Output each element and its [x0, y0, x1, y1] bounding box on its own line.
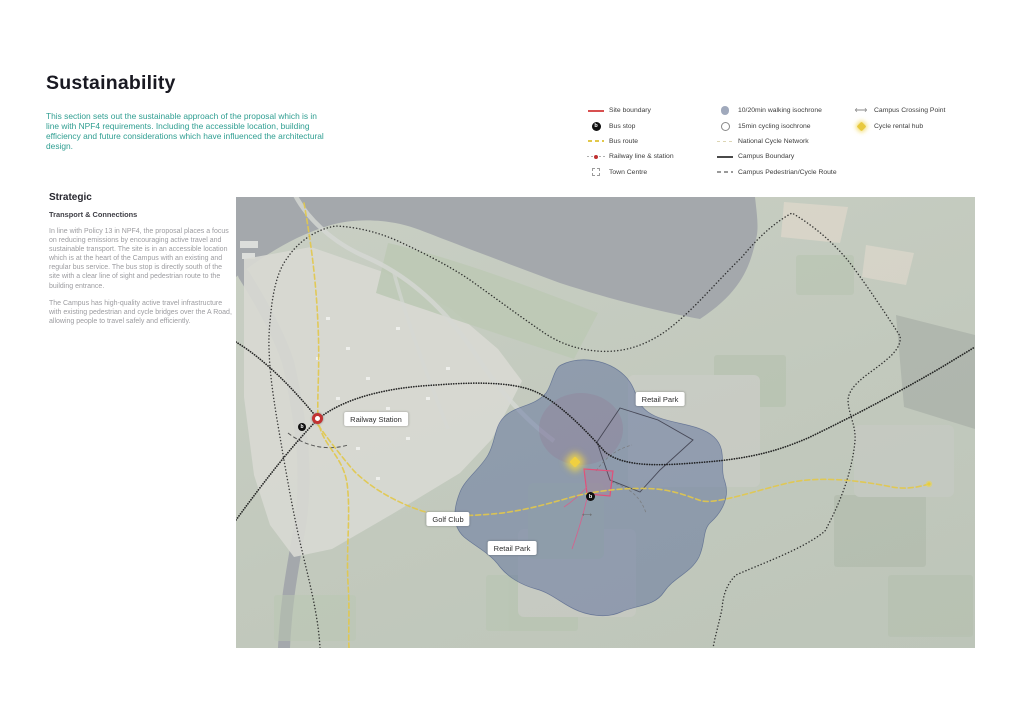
- body-paragraph: In line with Policy 13 in NPF4, the prop…: [49, 227, 232, 291]
- railway-station-icon: [587, 152, 605, 162]
- legend-item: Town Centre: [583, 165, 674, 180]
- legend-label: Cycle rental hub: [874, 123, 923, 130]
- town-centre-icon: [592, 168, 600, 176]
- legend-item: Campus Boundary: [712, 149, 837, 164]
- page-title: Sustainability: [46, 72, 176, 95]
- legend-item: Cycle rental hub: [848, 118, 945, 133]
- bus-stop-map-icon: b: [298, 423, 306, 431]
- body-paragraph: The Campus has high-quality active trave…: [49, 299, 232, 326]
- map-label-golf-club: Golf Club: [426, 512, 469, 526]
- legend-item: Railway line & station: [583, 149, 674, 164]
- legend-item: 15min cycling isochrone: [712, 118, 837, 133]
- legend-item: Site boundary: [583, 103, 674, 118]
- legend-label: 10/20min walking isochrone: [738, 107, 822, 114]
- bus-route-icon: [583, 140, 609, 142]
- cycling-isochrone-icon: [721, 122, 730, 131]
- walking-isochrone-icon: [721, 106, 730, 115]
- legend-label: Bus stop: [609, 123, 635, 130]
- strategic-section: Strategic Transport & Connections In lin…: [49, 192, 232, 334]
- map-label-railway-station: Railway Station: [344, 412, 408, 426]
- legend-label: Railway line & station: [609, 153, 674, 160]
- section-subheading: Transport & Connections: [49, 210, 232, 219]
- bus-stop-map-icon: b: [586, 492, 595, 501]
- legend-column-1: Site boundary b Bus stop Bus route Railw…: [583, 103, 674, 180]
- legend-item: National Cycle Network: [712, 134, 837, 149]
- legend-item: Bus route: [583, 134, 674, 149]
- legend-column-2: 10/20min walking isochrone 15min cycling…: [712, 103, 837, 180]
- site-boundary-icon: [583, 110, 609, 112]
- legend-label: Campus Crossing Point: [874, 107, 945, 114]
- legend-label: Town Centre: [609, 169, 647, 176]
- bus-stop-icon: b: [592, 122, 601, 131]
- national-cycle-network-icon: [712, 141, 738, 143]
- campus-boundary-icon: [712, 156, 738, 157]
- legend-item: ⟷ Campus Crossing Point: [848, 103, 945, 118]
- cycle-hub-icon: [856, 121, 866, 131]
- legend-label: Campus Pedestrian/Cycle Route: [738, 169, 837, 176]
- cycle-route-marker-dot: [927, 482, 930, 485]
- legend-item: b Bus stop: [583, 118, 674, 133]
- railway-station-map-icon: [312, 413, 323, 424]
- pedestrian-cycle-route-icon: [712, 171, 738, 173]
- document-page: Sustainability This section sets out the…: [0, 0, 1024, 724]
- legend-label: Bus route: [609, 138, 638, 145]
- intro-text: This section sets out the sustainable ap…: [46, 111, 324, 151]
- isochrone-overlap-tint: [539, 393, 623, 465]
- legend-label: 15min cycling isochrone: [738, 123, 811, 130]
- transport-map: ⟷ b b Railway Station Retail Park Golf C…: [236, 197, 975, 648]
- section-heading: Strategic: [49, 192, 232, 203]
- crossing-point-icon: ⟷: [855, 106, 868, 115]
- legend-item: Campus Pedestrian/Cycle Route: [712, 165, 837, 180]
- campus-crossing-point-icon: ⟷: [582, 512, 592, 519]
- map-label-retail-park-south: Retail Park: [488, 541, 537, 555]
- legend-label: Campus Boundary: [738, 153, 794, 160]
- legend-label: National Cycle Network: [738, 138, 809, 145]
- legend-column-3: ⟷ Campus Crossing Point Cycle rental hub: [848, 103, 945, 134]
- legend-label: Site boundary: [609, 107, 651, 114]
- map-label-retail-park-north: Retail Park: [636, 392, 685, 406]
- legend-item: 10/20min walking isochrone: [712, 103, 837, 118]
